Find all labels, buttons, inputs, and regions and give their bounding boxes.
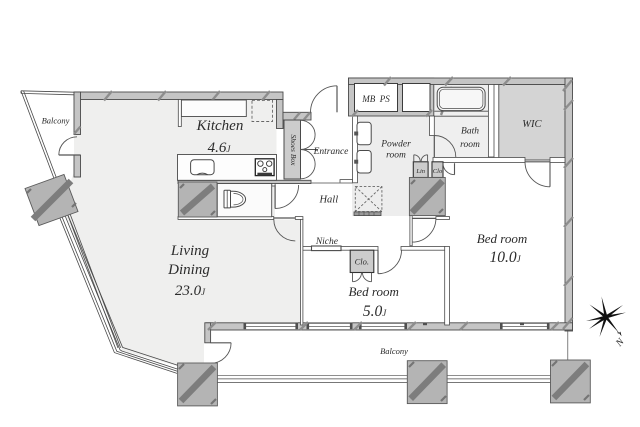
- svg-text:Kitchen: Kitchen: [196, 118, 244, 134]
- svg-text:Bed room: Bed room: [477, 231, 527, 246]
- svg-text:MB PS: MB PS: [361, 94, 390, 104]
- svg-text:5.0J: 5.0J: [363, 303, 387, 320]
- svg-text:room: room: [460, 140, 480, 150]
- svg-text:Living: Living: [170, 243, 210, 259]
- svg-text:Hall: Hall: [318, 195, 338, 206]
- svg-text:Powder: Powder: [380, 140, 411, 150]
- svg-text:Bed room: Bed room: [348, 284, 398, 299]
- svg-text:Clo.: Clo.: [355, 257, 369, 267]
- svg-text:Balcony: Balcony: [380, 346, 408, 356]
- svg-text:Dining: Dining: [167, 262, 210, 278]
- svg-text:Entrance: Entrance: [313, 147, 349, 157]
- svg-text:Bath: Bath: [461, 127, 479, 137]
- svg-text:Shoes Box: Shoes Box: [289, 134, 298, 166]
- svg-text:10.0J: 10.0J: [489, 249, 521, 266]
- svg-text:room: room: [386, 151, 406, 161]
- svg-text:WIC: WIC: [522, 119, 542, 130]
- svg-text:Clo: Clo: [433, 168, 443, 175]
- svg-text:Balcony: Balcony: [42, 116, 70, 126]
- svg-text:Lin: Lin: [415, 168, 425, 175]
- svg-text:Niche: Niche: [315, 237, 338, 247]
- svg-text:N: N: [613, 336, 627, 350]
